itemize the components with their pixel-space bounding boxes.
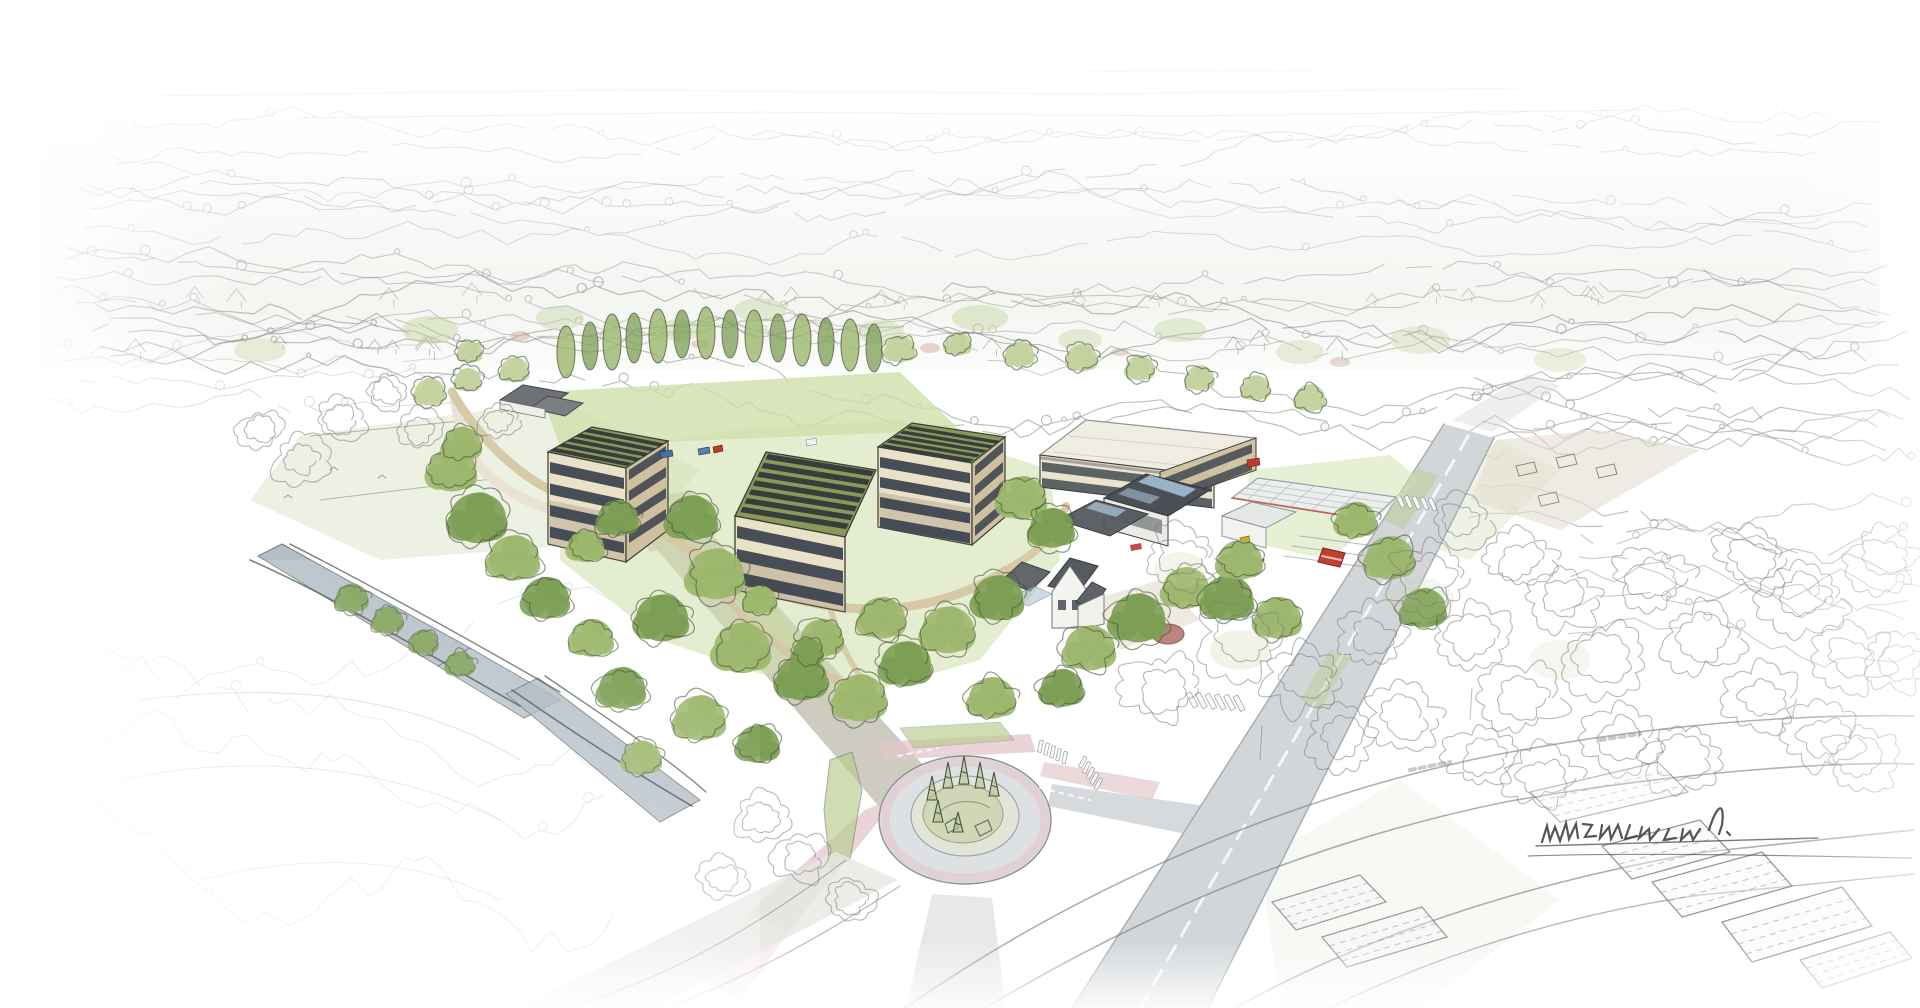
poplar-row xyxy=(626,313,642,363)
back-tree-row-tree xyxy=(1075,344,1092,359)
poplar-row xyxy=(603,314,621,370)
apartment-block-west xyxy=(548,427,668,562)
site-trees-tree xyxy=(894,641,922,666)
site-trees-tree xyxy=(465,492,496,520)
back-tree-row-tree xyxy=(1193,365,1208,379)
site-trees-tree xyxy=(801,638,818,653)
distant-color-hints xyxy=(1534,348,1586,372)
back-tree-row-tree xyxy=(464,341,477,353)
poplar-row xyxy=(793,314,811,366)
poplar-row xyxy=(818,318,834,366)
site-trees-tree xyxy=(1042,508,1066,530)
edge-fades xyxy=(0,0,1920,170)
distant-color-hints xyxy=(1111,348,1129,356)
site-trees-tree xyxy=(1125,593,1155,620)
site-trees-tree xyxy=(453,427,474,446)
sketch-canvas xyxy=(0,0,1920,1008)
gabled-house xyxy=(1058,600,1066,610)
vehicles xyxy=(1247,458,1260,467)
site-trees-tree xyxy=(848,674,877,700)
back-tree-row-tree xyxy=(462,368,476,381)
poplar-row xyxy=(745,310,763,362)
distant-color-hints xyxy=(1390,326,1450,354)
site-trees-tree xyxy=(986,575,1014,600)
poplar-row xyxy=(649,309,667,363)
poplar-row xyxy=(866,324,882,372)
back-tree-row-tree xyxy=(423,378,440,393)
architectural-aerial-sketch xyxy=(0,0,1920,1008)
edge-fades xyxy=(0,940,1920,1008)
poplar-row xyxy=(582,322,598,370)
site-trees-tree xyxy=(812,619,835,640)
poplar-row xyxy=(770,314,786,362)
distant-color-hints xyxy=(402,316,458,344)
poplar-row xyxy=(841,319,859,371)
distant-color-hints xyxy=(1154,318,1206,342)
site-trees-tree xyxy=(680,495,708,520)
edge-fades xyxy=(1780,0,1920,1008)
distant-color-hints xyxy=(920,343,940,353)
apartment-block-north xyxy=(878,423,1005,545)
site-trees-tree xyxy=(502,535,530,560)
distant-color-hints xyxy=(952,305,1008,331)
distant-color-hints xyxy=(536,306,584,330)
poplar-row xyxy=(674,310,690,358)
back-tree-row-tree xyxy=(1013,341,1028,355)
site-trees-tree xyxy=(936,606,965,632)
back-tree-row-tree xyxy=(508,357,523,371)
site-trees-tree xyxy=(1078,625,1106,650)
site-trees-tree xyxy=(1011,476,1037,500)
distant-color-hints xyxy=(234,338,286,362)
poplar-row xyxy=(557,326,575,378)
distant-color-hints xyxy=(1276,340,1324,364)
poplar-row xyxy=(697,307,715,359)
poplar-row xyxy=(722,310,738,358)
back-tree-row-tree xyxy=(1249,375,1264,389)
site-trees-tree xyxy=(1267,597,1292,620)
sketch-trees xyxy=(1386,578,1454,622)
distant-color-hints xyxy=(1330,357,1350,367)
distant-color-hints xyxy=(510,331,530,341)
